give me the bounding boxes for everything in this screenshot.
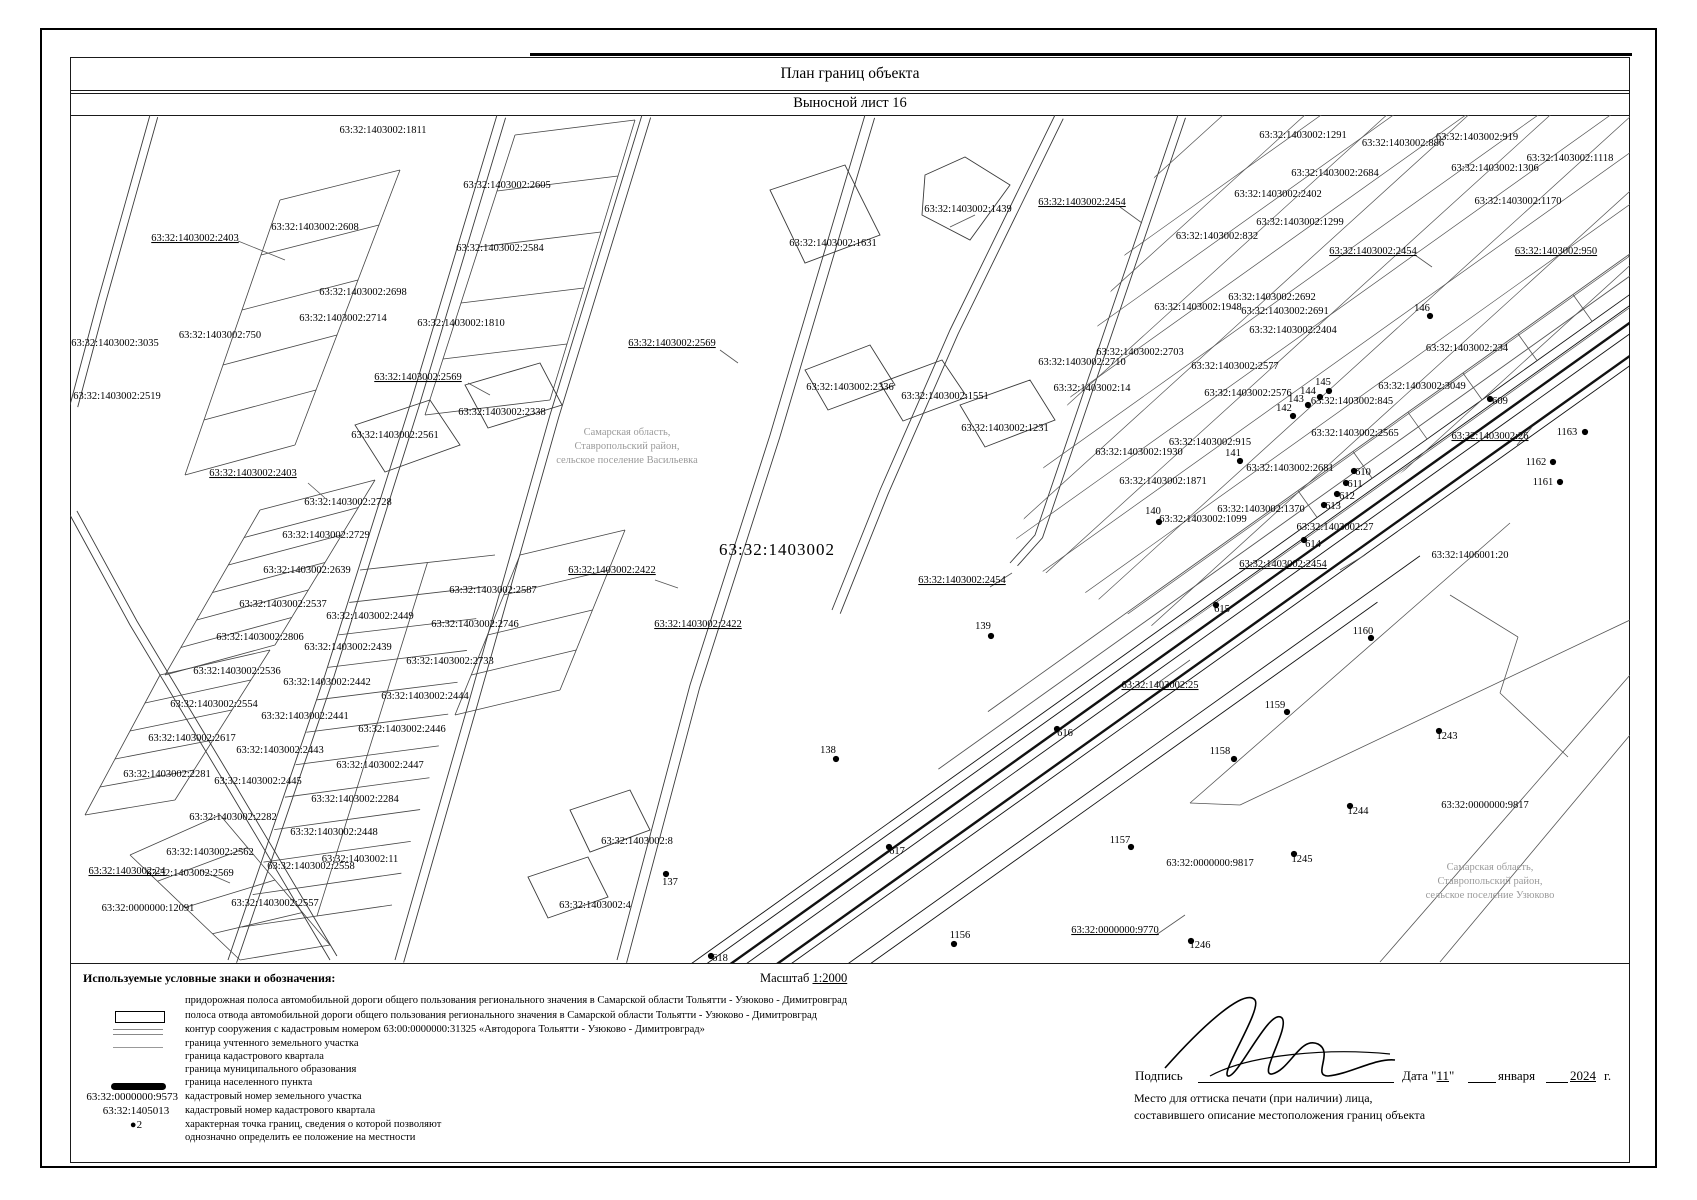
parcel-label: 1162: [1526, 457, 1547, 468]
parcel-polygon: [922, 157, 1010, 240]
boundary-line: [1500, 693, 1568, 757]
parcel-label: 137: [662, 877, 678, 888]
parcel-label: 1157: [1110, 835, 1131, 846]
boundary-line: [280, 170, 400, 200]
char-point: [1436, 728, 1442, 734]
parcel-label: 63:32:1403002:2569: [146, 868, 234, 879]
parcel-label: 63:32:0000000:9770: [1071, 925, 1159, 936]
parcel-label: 63:32:1403002:950: [1515, 246, 1597, 257]
boundary-line: [520, 530, 625, 555]
quarter-label: 63:32:1403002: [719, 540, 835, 559]
parcel-label: 63:32:1403002:2561: [351, 430, 439, 441]
char-point: [1291, 851, 1297, 857]
boundary-line: [130, 710, 232, 731]
parcel-label: 63:32:1403002:2691: [1241, 306, 1329, 317]
parcel-label: 63:32:1403002:4: [559, 900, 632, 911]
parcel-label: 63:32:1403002:2584: [456, 243, 544, 254]
parcel-label: 63:32:1403002:26: [1451, 431, 1528, 442]
region-note: Ставропольский район,: [1437, 876, 1542, 887]
parcel-label: 63:32:1403002:2746: [431, 619, 519, 630]
char-point: [1301, 537, 1307, 543]
date-word: Дата: [1402, 1068, 1428, 1083]
parcel-label: 139: [975, 621, 991, 632]
parcel-label: 63:32:1403002:1439: [924, 204, 1012, 215]
parcel-label: 63:32:1403002:1810: [417, 318, 505, 329]
boundary-line: [360, 555, 495, 570]
parcel-label: 63:32:0000000:12091: [102, 903, 195, 914]
boundary-line: [744, 115, 1630, 527]
parcel-label: 63:32:1403002:1170: [1474, 196, 1561, 207]
parcel-label: 63:32:1403002:2454: [918, 575, 1006, 586]
parcel-label: 63:32:1403002:2444: [381, 691, 469, 702]
boundary-line: [667, 268, 1630, 963]
char-point: [1188, 938, 1194, 944]
boundary-line: [768, 115, 1630, 561]
parcel-label: 63:32:1403002:1930: [1095, 447, 1183, 458]
parcel-label: 63:32:1403002:750: [179, 330, 261, 341]
char-point: [1368, 635, 1374, 641]
char-point: [1351, 468, 1357, 474]
parcel-label: 63:32:1403002:2710: [1038, 357, 1126, 368]
char-point: [1054, 726, 1060, 732]
char-point: [663, 871, 669, 877]
boundary-line: [204, 390, 316, 420]
parcel-label: 63:32:1403002:2608: [271, 222, 359, 233]
char-point: [1334, 491, 1340, 497]
legend-swatch-settlement-boundary: [111, 1083, 166, 1090]
legend-row-structure-contour: контур сооружения с кадастровым номером …: [185, 1024, 705, 1035]
parcel-label: 63:32:1403002:25: [1121, 680, 1198, 691]
char-point: [1290, 413, 1296, 419]
legend-swatch-right-of-way: [115, 1011, 165, 1023]
legend-row-municipal-boundary: граница муниципального образования: [185, 1064, 356, 1075]
parcel-label: 1161: [1533, 477, 1554, 488]
legend-quarter-number-sample: 63:32:1405013: [94, 1105, 178, 1117]
legend-swatch-parcel-boundary: [113, 1047, 163, 1048]
top-accent-line: [530, 53, 1632, 56]
char-point: [708, 953, 714, 959]
date-line-2: [1546, 1081, 1568, 1083]
parcel-label: 63:32:1403002:1299: [1256, 217, 1344, 228]
parcel-label: 63:32:1403002:2554: [170, 699, 258, 710]
parcel-polygon: [465, 363, 562, 428]
boundary-line: [1518, 334, 1537, 361]
char-point: [1557, 479, 1563, 485]
boundary-line: [1450, 595, 1518, 637]
parcel-label: 63:32:1403002:1231: [961, 423, 1049, 434]
parcel-label: 138: [820, 745, 836, 756]
char-point: [833, 756, 839, 762]
char-point: [1317, 394, 1323, 400]
region-note: Ставропольский район,: [574, 441, 679, 452]
parcel-label: 63:32:1403002:2454: [1239, 559, 1327, 570]
parcel-label: 1159: [1265, 700, 1286, 711]
parcel-label: 1156: [950, 930, 971, 941]
boundary-line: [1380, 675, 1630, 962]
boundary-line: [461, 288, 584, 303]
boundary-line: [720, 350, 738, 363]
parcel-label: 145: [1315, 377, 1331, 388]
date-month: января: [1498, 1068, 1535, 1084]
boundary-line: [240, 945, 330, 960]
legend-row-quarter-boundary: граница кадастрового квартала: [185, 1051, 324, 1062]
parcel-label: 63:32:1403002:2441: [261, 711, 349, 722]
legend-swatch-contour-line1: [113, 1029, 163, 1030]
parcel-label: 63:32:1403002:2448: [290, 827, 378, 838]
legend-row-char-point-1: характерная точка границ, сведения о кот…: [185, 1119, 441, 1130]
boundary-polyline: [1017, 118, 1185, 566]
parcel-label: 63:32:1403002:2338: [458, 407, 546, 418]
parcel-label: 63:32:1403002:2422: [568, 565, 656, 576]
page-title: План границ объекта: [70, 58, 1630, 90]
parcel-label: 63:32:1403002:2569: [628, 338, 716, 349]
parcel-label: 63:32:1403002:2284: [311, 794, 399, 805]
parcel-label: 63:32:1403002:2569: [374, 372, 462, 383]
scale-prefix: Масштаб: [760, 971, 809, 985]
boundary-line: [1463, 373, 1482, 400]
parcel-label: 63:32:1403002:915: [1169, 437, 1251, 448]
boundary-polyline: [85, 675, 160, 815]
parcel-label: 63:32:1403002:11: [322, 854, 399, 865]
date-line-1: [1468, 1081, 1496, 1083]
parcel-label: 613: [1325, 501, 1341, 512]
legend-row-parcel-boundary: граница учтенного земельного участка: [185, 1038, 359, 1049]
boundary-line: [1440, 735, 1630, 962]
parcel-label: 63:32:1403002:3035: [71, 338, 159, 349]
parcel-label: 63:32:1403002:2447: [336, 760, 424, 771]
stamp-note-line1: Место для оттиска печати (при наличии) л…: [1134, 1091, 1373, 1106]
boundary-line: [1340, 555, 1365, 570]
stamp-note-line2: составившего описание местоположения гра…: [1134, 1108, 1425, 1123]
boundary-line: [849, 115, 1589, 529]
sheet-subtitle: Выносной лист 16: [70, 92, 1630, 115]
parcel-label: 614: [1305, 539, 1322, 550]
legend-block: Используемые условные знаки и обозначени…: [70, 963, 1630, 1163]
legend-header: Используемые условные знаки и обозначени…: [83, 971, 335, 986]
legend-row-quarter-number: кадастровый номер кадастрового квартала: [185, 1105, 375, 1116]
parcel-label: 63:32:1403002:1306: [1451, 163, 1539, 174]
boundary-line: [1500, 637, 1518, 693]
boundary-map: 63:32:1403002:181163:32:1403002:240363:3…: [70, 115, 1630, 963]
signature-line: [1198, 1081, 1394, 1083]
parcel-label: 63:32:1403002:919: [1436, 132, 1518, 143]
parcel-label: 63:32:1403002:2639: [263, 565, 351, 576]
char-point: [951, 941, 957, 947]
parcel-label: 1163: [1557, 427, 1578, 438]
boundary-polyline: [550, 120, 635, 400]
parcel-label: 63:32:1403002:2403: [151, 233, 239, 244]
boundary-polyline: [840, 119, 1063, 614]
parcel-label: 63:32:1403002:2439: [304, 642, 392, 653]
parcel-label: 63:32:1403002:1871: [1119, 476, 1207, 487]
parcel-label: 63:32:1403002:2562: [166, 847, 254, 858]
parcel-label: 610: [1355, 467, 1371, 478]
char-point: [1321, 502, 1327, 508]
year-suffix: г.: [1604, 1068, 1611, 1084]
date-year: 2024: [1570, 1068, 1596, 1084]
signature-stroke: [1150, 988, 1400, 1083]
parcel-label: 63:32:1403002:2281: [123, 769, 211, 780]
parcel-label: 618: [712, 953, 728, 963]
parcel-label: 63:32:1403002:2733: [406, 656, 494, 667]
legend-row-parcel-number: кадастровый номер земельного участка: [185, 1091, 362, 1102]
boundary-line: [213, 913, 303, 934]
parcel-label: 63:32:1403002:2728: [304, 497, 392, 508]
char-point: [1284, 709, 1290, 715]
char-point: [1582, 429, 1588, 435]
parcel-label: 63:32:1403002:2454: [1329, 246, 1417, 257]
parcel-label: 63:32:1403002:2806: [216, 632, 304, 643]
parcel-label: 63:32:1403002:1811: [339, 125, 426, 136]
parcel-label: 63:32:1403002:27: [1296, 522, 1373, 533]
boundary-polyline: [295, 170, 400, 445]
parcel-label: 63:32:1403002:2536: [193, 666, 281, 677]
boundary-line: [1156, 915, 1185, 935]
char-point: [1305, 402, 1311, 408]
boundary-line: [253, 873, 402, 894]
parcel-label: 63:32:1403002:2454: [1038, 197, 1126, 208]
region-note: Самарская область,: [584, 427, 671, 438]
title-separator: [70, 90, 1630, 91]
legend-swatch-contour-line2: [113, 1034, 163, 1035]
legend-row-settlement-boundary: граница населенного пункта: [185, 1077, 312, 1088]
year-value: 2024: [1570, 1068, 1596, 1083]
parcel-label: 63:32:1403002:1631: [789, 238, 877, 249]
char-point: [1487, 396, 1493, 402]
parcel-label: 63:32:1403002:2282: [189, 812, 277, 823]
parcel-label: 63:32:1403002:1099: [1159, 514, 1247, 525]
parcel-label: 63:32:1403002:2557: [231, 898, 319, 909]
boundary-polyline: [78, 117, 158, 407]
parcel-label: 63:32:1403002:8: [601, 836, 673, 847]
signature-label: Подпись: [1135, 1068, 1183, 1084]
parcel-label: 63:32:1403002:2404: [1249, 325, 1337, 336]
char-point: [1231, 756, 1237, 762]
parcel-label: 63:32:1403002:845: [1311, 396, 1393, 407]
region-note: Самарская область,: [1447, 862, 1534, 873]
char-point: [1427, 313, 1433, 319]
char-point: [1550, 459, 1556, 465]
cadastral-plan-sheet: План границ объекта Выносной лист 16 63:…: [0, 0, 1697, 1200]
parcel-label: 63:32:1403002:2442: [283, 677, 371, 688]
char-point: [1343, 480, 1349, 486]
boundary-line: [1415, 255, 1432, 267]
char-point: [1347, 803, 1353, 809]
legend-row-right-of-way: полоса отвода автомобильной дороги общег…: [185, 1010, 817, 1021]
parcel-label: 141: [1225, 448, 1241, 459]
legend-row-char-point-2: однозначно определить ее положение на ме…: [185, 1132, 415, 1143]
parcel-label: 63:32:0000000:9817: [1441, 800, 1529, 811]
parcel-label: 142: [1276, 403, 1292, 414]
parcel-label: 63:32:1403002:1118: [1527, 153, 1614, 164]
char-point: [1156, 519, 1162, 525]
scale-value: 1:2000: [812, 971, 847, 985]
char-point: [1128, 844, 1134, 850]
map-scale: Масштаб 1:2000: [760, 971, 847, 986]
parcel-label: 609: [1492, 396, 1508, 407]
char-point: [1326, 388, 1332, 394]
parcel-label: 63:32:1403002:2576: [1204, 388, 1292, 399]
parcel-label: 63:32:1403002:886: [1362, 138, 1444, 149]
boundary-line: [1573, 295, 1592, 322]
char-point: [1213, 602, 1219, 608]
parcel-label: 63:32:1403002:2402: [1234, 189, 1322, 200]
region-note: сельское поселение Узюково: [1426, 890, 1555, 901]
legend-parcel-number-sample: 63:32:0000000:9573: [78, 1091, 178, 1103]
region-note: сельское поселение Васильевка: [556, 455, 698, 466]
parcel-label: 63:32:1403002:2605: [463, 180, 551, 191]
parcel-label: 63:32:1403002:2587: [449, 585, 537, 596]
boundary-line: [1071, 115, 1630, 773]
boundary-line: [727, 602, 1377, 963]
parcel-label: 63:32:1403002:1551: [901, 391, 989, 402]
boundary-line: [468, 383, 490, 395]
boundary-line: [775, 115, 1515, 448]
boundary-line: [1190, 803, 1240, 805]
parcel-label: 63:32:1403002:2445: [214, 776, 302, 787]
boundary-line: [308, 483, 325, 498]
parcel-label: 63:32:1403002:3049: [1378, 381, 1466, 392]
parcel-label: 63:32:0000000:9817: [1166, 858, 1254, 869]
date-label: Дата "11": [1402, 1068, 1454, 1084]
boundary-line: [85, 800, 175, 815]
parcel-label: 63:32:1403002:2565: [1311, 428, 1399, 439]
map-canvas: 63:32:1403002:181163:32:1403002:240363:3…: [70, 115, 1630, 963]
parcel-label: 611: [1347, 479, 1362, 490]
boundary-line: [515, 120, 635, 135]
parcel-label: 63:32:1403002:2403: [209, 468, 297, 479]
parcel-label: 63:32:1403002:234: [1426, 343, 1509, 354]
char-point: [1237, 458, 1243, 464]
parcel-label: 63:32:1403002:2681: [1246, 463, 1334, 474]
parcel-label: 63:32:1406001:20: [1431, 550, 1508, 561]
parcel-label: 63:32:1403002:2449: [326, 611, 414, 622]
legend-point-sample: ●2: [110, 1119, 162, 1131]
boundary-line: [443, 344, 567, 359]
boundary-polyline: [1010, 115, 1178, 563]
legend-row-roadside-strip: придорожная полоса автомобильной дороги …: [185, 995, 847, 1006]
boundary-polyline: [70, 115, 150, 405]
boundary-line: [1240, 620, 1630, 805]
parcel-label: 146: [1414, 303, 1430, 314]
char-point: [988, 633, 994, 639]
parcel-label: 63:32:1403002:2422: [654, 619, 742, 630]
parcel-label: 63:32:1403002:2698: [319, 287, 407, 298]
parcel-label: 63:32:1403002:2443: [236, 745, 324, 756]
parcel-label: 1158: [1210, 746, 1231, 757]
boundary-line: [1120, 207, 1142, 223]
boundary-line: [1408, 412, 1427, 439]
parcel-polygon: [805, 345, 895, 410]
boundary-line: [1628, 255, 1630, 282]
boundary-line: [720, 556, 1420, 963]
date-day: 11: [1436, 1068, 1449, 1083]
parcel-label: 63:32:1403002:2617: [148, 733, 236, 744]
parcel-label: 63:32:1403002:1291: [1259, 130, 1347, 141]
parcel-label: 63:32:1403002:14: [1053, 383, 1131, 394]
char-point: [886, 844, 892, 850]
parcel-label: 63:32:1403002:2446: [358, 724, 446, 735]
parcel-label: 63:32:1403002:2729: [282, 530, 370, 541]
parcel-label: 63:32:1403002:832: [1176, 231, 1258, 242]
parcel-label: 63:32:1403002:2714: [299, 313, 387, 324]
parcel-label: 63:32:1403002:2519: [73, 391, 161, 402]
parcel-label: 63:32:1403002:2537: [239, 599, 327, 610]
parcel-label: 63:32:1403002:2336: [806, 382, 894, 393]
boundary-line: [655, 580, 678, 588]
parcel-label: 63:32:1403002:1948: [1154, 302, 1242, 313]
parcel-label: 63:32:1403002:2577: [1191, 361, 1279, 372]
parcel-label: 612: [1339, 491, 1355, 502]
boundary-line: [950, 215, 975, 227]
parcel-label: 63:32:1403002:2684: [1291, 168, 1379, 179]
